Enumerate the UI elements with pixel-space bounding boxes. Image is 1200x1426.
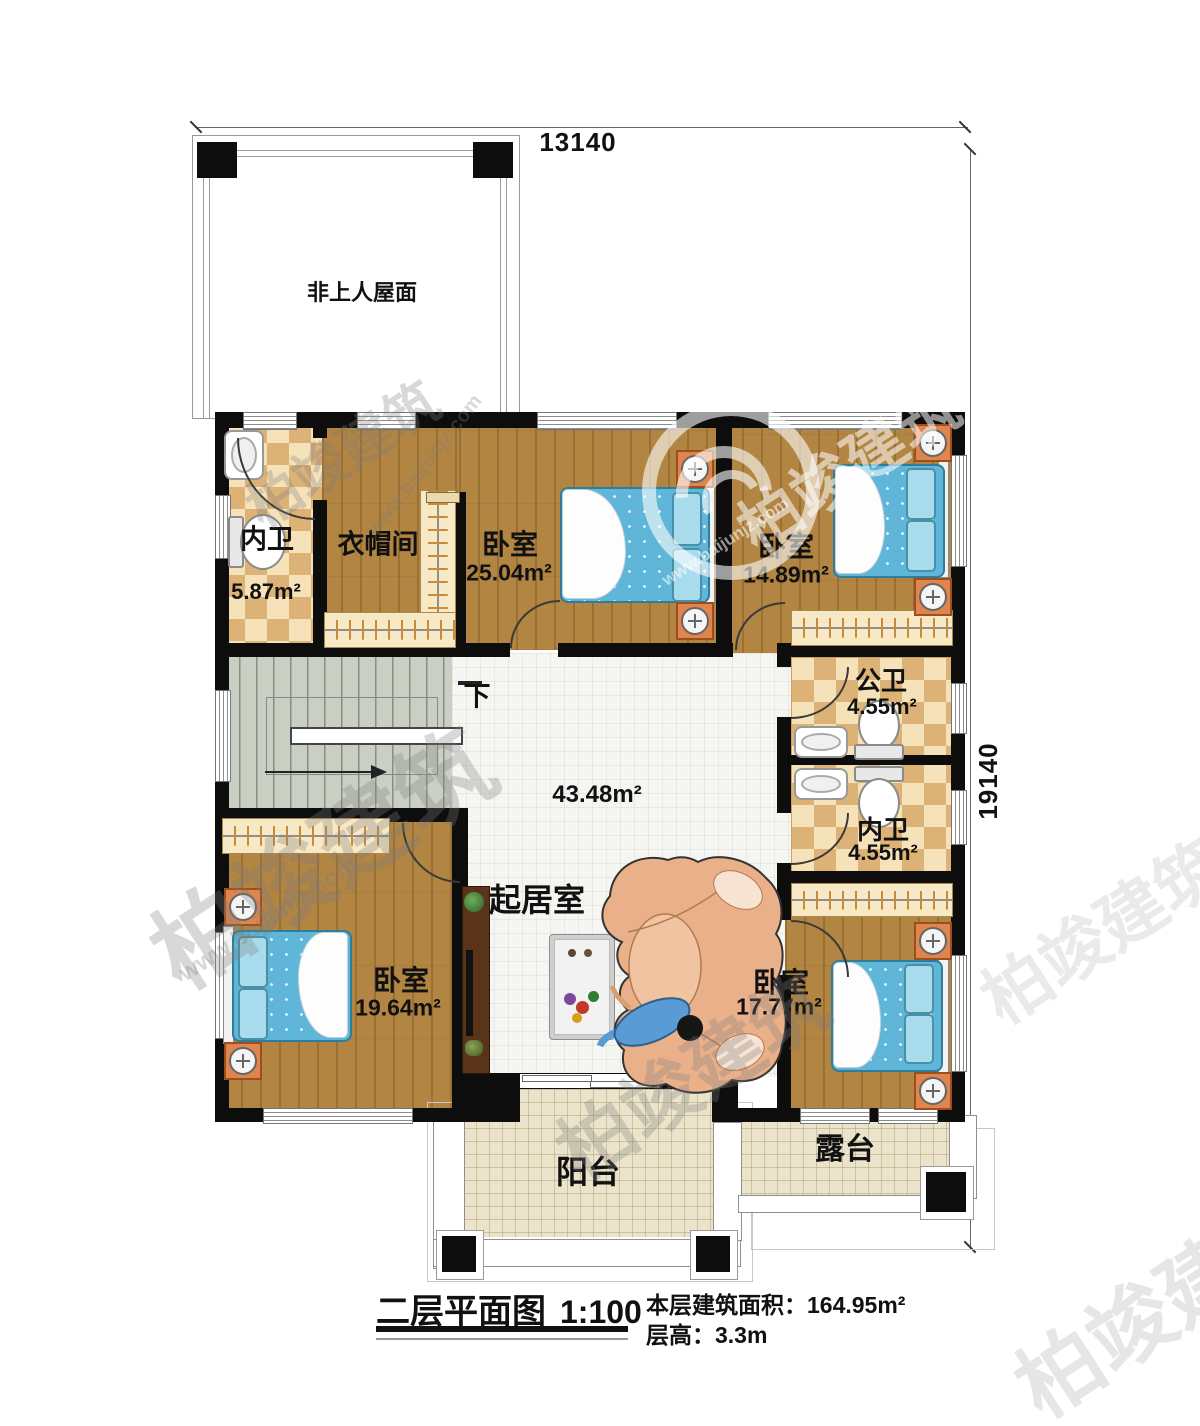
balcony-column: [696, 1236, 730, 1272]
nightstand: [914, 578, 952, 616]
floor-area-line: 本层建筑面积：164.95m²: [646, 1286, 905, 1320]
room-area: 43.48m²: [552, 783, 641, 807]
watermark-brand: 柏竣建筑: [989, 1157, 1200, 1426]
plant-icon: [464, 892, 484, 912]
wall-interior: [558, 643, 733, 657]
watermark-brand: 柏竣建筑: [959, 812, 1200, 1043]
title-underline-thick: [376, 1326, 628, 1332]
wall-bath-left: [777, 717, 791, 813]
floor-area-value: 164.95m²: [807, 1292, 905, 1318]
wardrobe: [324, 612, 456, 648]
window: [951, 683, 967, 734]
floor-height-value: 3.3m: [715, 1322, 767, 1348]
balcony-parapet-right: [713, 1122, 742, 1241]
title-underline-thin: [376, 1338, 628, 1340]
window: [800, 1108, 870, 1124]
dimension-width-label: 13140: [539, 129, 616, 155]
dimension-line-right: [970, 150, 971, 1250]
bed-pillow: [238, 988, 268, 1040]
floor-area-label: 本层建筑面积：: [646, 1292, 807, 1318]
window: [951, 455, 967, 567]
closet-door-leaf: [426, 492, 460, 503]
roof-column: [197, 142, 237, 178]
nightstand: [224, 1042, 262, 1080]
window: [951, 955, 967, 1072]
window: [243, 412, 297, 430]
room-area: 25.04m²: [466, 562, 552, 585]
toilet-tank: [854, 744, 904, 760]
balcony-column: [442, 1236, 476, 1272]
room-label: 露台: [815, 1135, 875, 1165]
bed-pillow: [904, 1014, 934, 1064]
window: [537, 412, 677, 430]
bed-pillow: [904, 964, 934, 1014]
terrace-door-opening: [878, 1108, 938, 1124]
window: [951, 790, 967, 845]
nightstand: [914, 922, 952, 960]
floor-plan-canvas: 13140 19140 非上人屋面: [0, 0, 1200, 1426]
roof-column: [473, 142, 513, 178]
room-area: 4.55m²: [848, 842, 918, 864]
terrace-column: [926, 1172, 966, 1212]
floor-height-line: 层高：3.3m: [646, 1316, 767, 1350]
floor-height-label: 层高：: [646, 1322, 715, 1348]
room-label: 卧室: [482, 531, 538, 559]
room-area: 5.87m²: [231, 581, 301, 603]
bed-pillow: [906, 520, 936, 572]
nightstand: [914, 1072, 952, 1110]
room-label: 卧室: [373, 967, 429, 995]
plant-icon: [465, 1040, 483, 1056]
wardrobe: [791, 883, 953, 917]
window: [263, 1108, 413, 1124]
stairs-down-label: 下: [464, 684, 491, 711]
room-area: 4.55m²: [847, 696, 917, 718]
bed-pillow: [906, 468, 936, 520]
room-area: 19.64m²: [355, 997, 441, 1020]
window: [215, 690, 231, 782]
nightstand: [676, 602, 714, 640]
roof-label: 非上人屋面: [307, 282, 417, 304]
room-label: 公卫: [855, 668, 907, 694]
tv-icon: [466, 950, 473, 1036]
sink: [794, 726, 848, 758]
dimension-depth-label: 19140: [975, 742, 1001, 819]
sink: [794, 768, 848, 800]
room-label: 起居室: [489, 884, 585, 916]
